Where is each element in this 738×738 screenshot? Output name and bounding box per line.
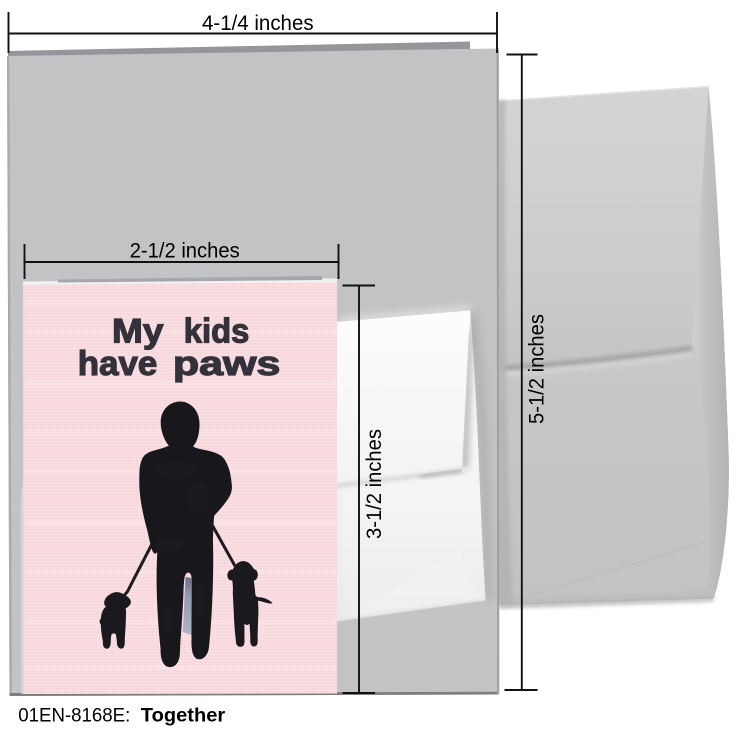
svg-text:paws: paws (173, 345, 281, 383)
svg-text:2-1/2 inches: 2-1/2 inches (130, 239, 240, 263)
svg-text:5-1/2 inches: 5-1/2 inches (525, 314, 549, 424)
svg-text:4-1/4 inches: 4-1/4 inches (202, 11, 314, 35)
svg-text:Together: Together (141, 705, 226, 727)
svg-text:3-1/2 inches: 3-1/2 inches (362, 429, 386, 539)
svg-text:have: have (78, 345, 158, 383)
svg-text:01EN-8168E:: 01EN-8168E: (18, 705, 130, 727)
